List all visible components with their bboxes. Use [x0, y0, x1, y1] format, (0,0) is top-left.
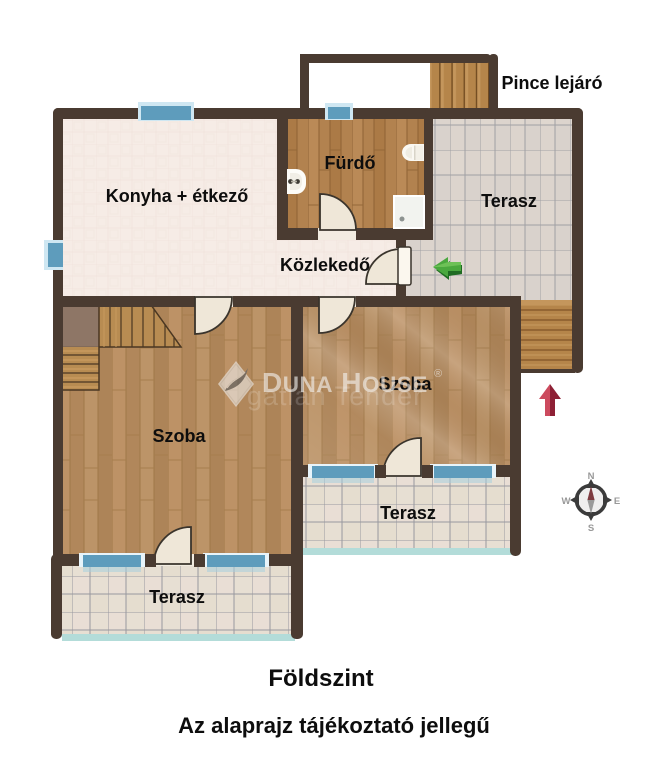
- svg-text:N: N: [588, 471, 595, 482]
- svg-text:Közlekedő: Közlekedő: [280, 255, 370, 275]
- svg-text:Terasz: Terasz: [149, 587, 205, 607]
- svg-text:®: ®: [434, 368, 442, 380]
- svg-text:Szoba: Szoba: [152, 426, 206, 446]
- svg-text:gatlan Tender: gatlan Tender: [247, 381, 423, 411]
- svg-text:W: W: [562, 496, 571, 507]
- svg-text:Terasz: Terasz: [481, 191, 537, 211]
- svg-text:Pince lejáró: Pince lejáró: [501, 73, 602, 93]
- svg-text:Az alaprajz tájékoztató jelleg: Az alaprajz tájékoztató jellegű: [178, 713, 490, 738]
- svg-text:Konyha + étkező: Konyha + étkező: [106, 186, 249, 206]
- svg-text:Fürdő: Fürdő: [325, 153, 376, 173]
- svg-text:Földszint: Földszint: [268, 665, 373, 692]
- svg-text:S: S: [588, 523, 594, 534]
- svg-text:Terasz: Terasz: [380, 503, 436, 523]
- svg-text:E: E: [614, 496, 620, 507]
